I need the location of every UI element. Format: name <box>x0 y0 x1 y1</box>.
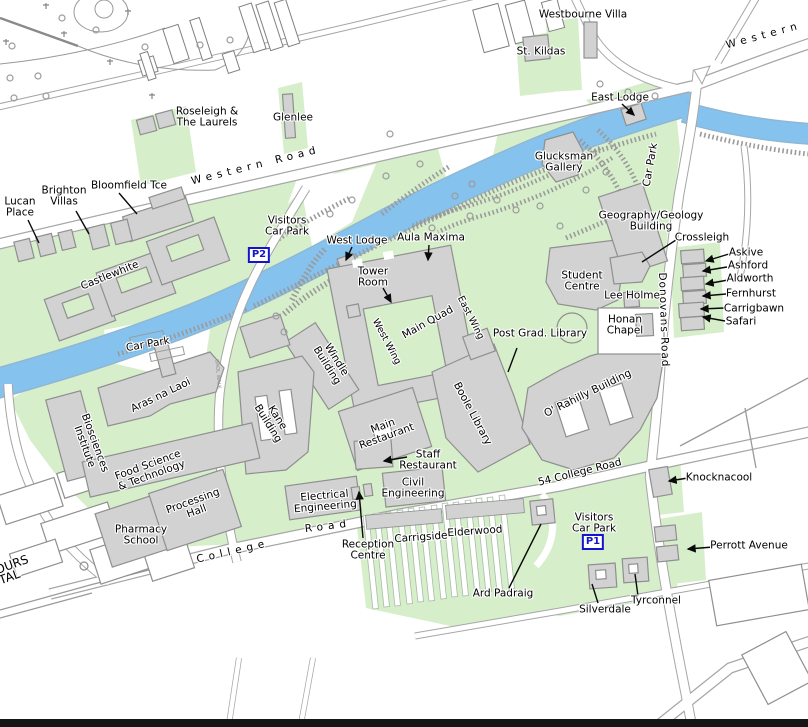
label-glucksman-gallery: GlucksmanGallery <box>535 152 593 175</box>
label-brighton-villas: BrightonVillas <box>42 186 87 209</box>
label-boole-library: Boole Library <box>451 381 494 448</box>
label-college-road-west: College <box>196 538 271 566</box>
label-biosciences-institute: BiosciencesInstitute <box>68 412 110 478</box>
label-pharmacy-school: PharmacySchool <box>115 525 167 548</box>
label-west-wing: West Wing <box>370 317 403 366</box>
label-hospital-ital: ITAL <box>0 568 22 589</box>
label-food-science: Food Science& Technology <box>113 448 187 493</box>
label-fifty-four-college-road: 54 College Road <box>537 457 623 489</box>
label-carrigbawn: Carrigbawn <box>724 303 784 314</box>
label-donovans-road: Donovans Road <box>656 272 671 367</box>
campus-map[interactable]: Westbourne VillaSt. KildasWesternEast Lo… <box>0 0 808 727</box>
label-askive: Askive <box>729 247 763 258</box>
label-ashford: Ashford <box>728 260 768 271</box>
label-safari: Safari <box>726 316 756 327</box>
label-main-quad: Main Quad <box>401 304 456 341</box>
label-perrott-avenue: Perrott Avenue <box>710 540 788 551</box>
label-civil-engineering: CivilEngineering <box>382 478 445 501</box>
label-main-restaurant: MainRestaurant <box>354 412 416 453</box>
label-car-park-east: Car Park <box>642 142 661 187</box>
label-staff-restaurant: StaffRestaurant <box>399 450 456 473</box>
label-st-kildas: St. Kildas <box>517 46 566 57</box>
label-westbourne-villa: Westbourne Villa <box>539 9 627 20</box>
label-aldworth: Aldworth <box>727 273 774 284</box>
label-western-road: Western Road <box>190 144 322 187</box>
label-west-lodge: West Lodge <box>326 235 387 246</box>
label-visitors-car-park-p2: VisitorsCar Park <box>265 216 309 239</box>
label-aras-na-laoi: Aras na Laoi <box>129 377 192 416</box>
label-electrical-engineering: ElectricalEngineering <box>293 488 358 516</box>
parking-badge-p2: P2 <box>248 247 270 263</box>
label-roseleigh: Roseleigh &The Laurels <box>176 107 238 130</box>
label-geography-geology: Geography/GeologyBuilding <box>599 211 704 234</box>
label-post-grad-library: Post Grad. Library <box>493 328 587 339</box>
label-east-lodge: East Lodge <box>591 92 649 103</box>
label-windle-building: WindleBuilding <box>310 339 352 387</box>
label-western-road-east: Western <box>725 20 803 51</box>
label-car-park-west: Car Park <box>125 336 170 355</box>
label-east-wing: East Wing <box>455 295 486 342</box>
label-lee-holme: Lee Holme <box>604 290 660 301</box>
label-kane-building: KaneBuilding <box>251 397 293 445</box>
label-lucan-place: LucanPlace <box>4 197 35 220</box>
label-glenlee: Glenlee <box>273 112 313 123</box>
label-silverdale: Silverdale <box>579 604 631 615</box>
label-ard-padraig: Ard Padraig <box>473 588 534 599</box>
label-reception-centre: ReceptionCentre <box>342 540 394 563</box>
label-aula-maxima: Aula Maxima <box>397 232 465 243</box>
label-o-rahilly-building: O' Rahilly Building <box>543 368 634 420</box>
label-elderwood: Elderwood <box>447 524 503 539</box>
label-layer: Westbourne VillaSt. KildasWesternEast Lo… <box>0 0 808 727</box>
label-processing-hall: ProcessingHall <box>165 487 225 527</box>
attribution-bar <box>0 719 808 727</box>
label-knocknacool: Knocknacool <box>686 472 752 483</box>
label-honan-chapel: HonanChapel <box>607 315 643 338</box>
parking-badge-p1: P1 <box>582 534 604 550</box>
label-tyrconnel: Tyrconnel <box>631 595 681 606</box>
label-fernhurst: Fernhurst <box>726 288 776 299</box>
label-college-road-mid: Road <box>304 519 351 536</box>
label-tower-room: TowerRoom <box>358 267 388 290</box>
label-carrigside: Carrigside <box>394 530 448 545</box>
label-visitors-car-park-p1: VisitorsCar Park <box>572 513 616 536</box>
label-bloomfield-tce: Bloomfield Tce <box>91 180 167 191</box>
label-castlewhite: Castlewhite <box>79 259 140 293</box>
label-gaol-walk: GAOL WALK <box>213 359 221 389</box>
label-student-centre: StudentCentre <box>561 271 602 294</box>
label-crossleigh: Crossleigh <box>675 232 729 243</box>
